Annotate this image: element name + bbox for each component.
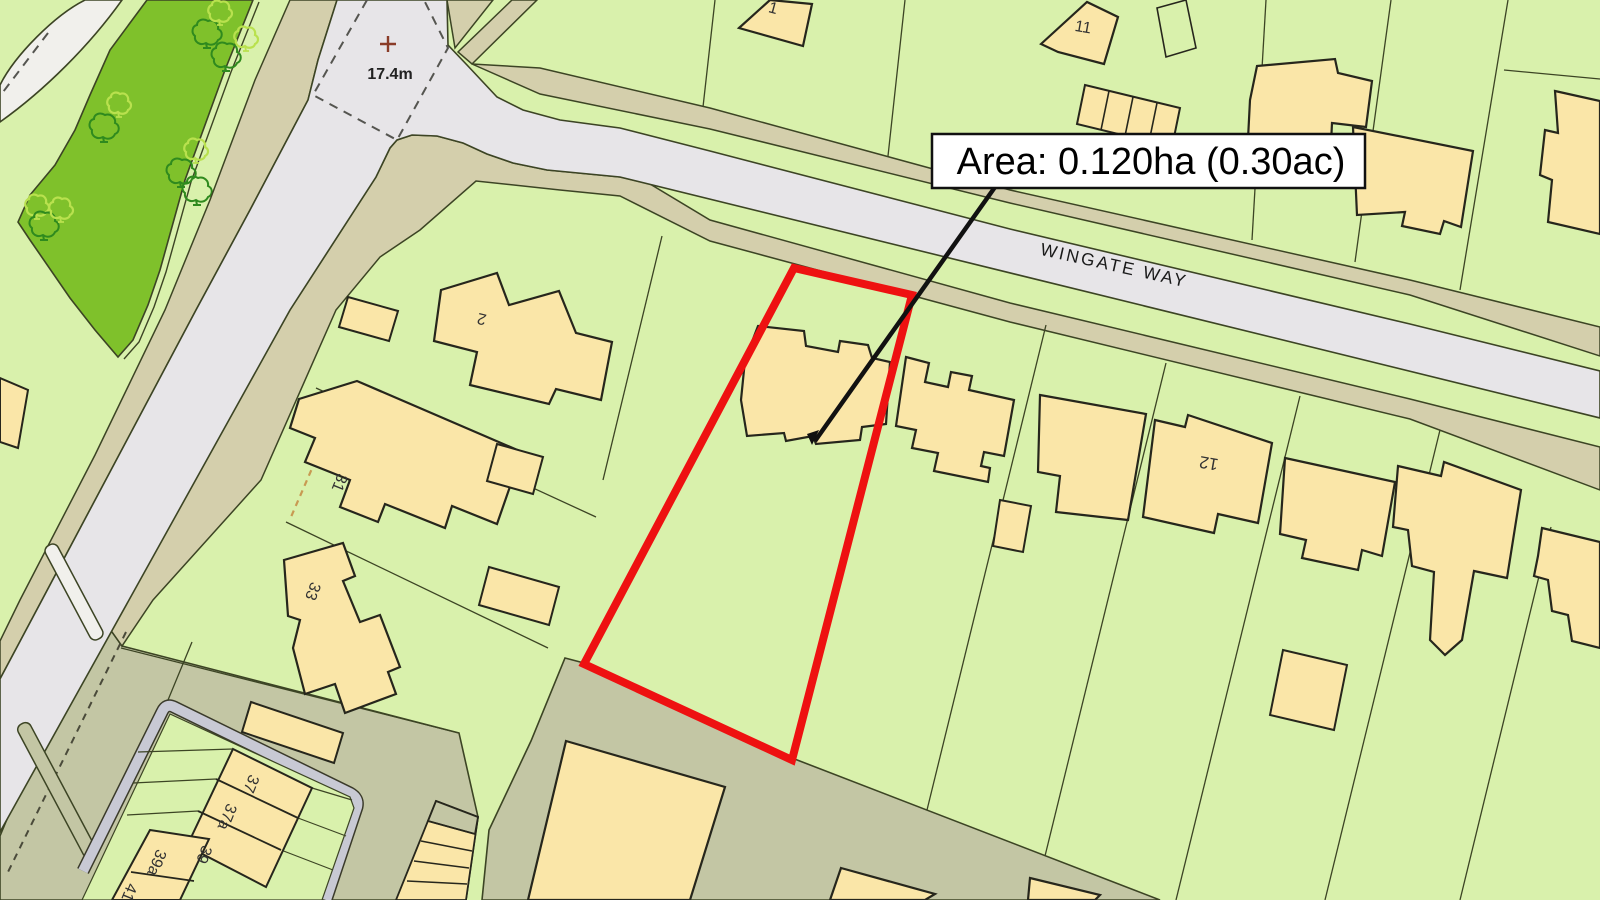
svg-text:12: 12 (1198, 452, 1220, 474)
svg-text:Area: 0.120ha (0.30ac): Area: 0.120ha (0.30ac) (957, 141, 1346, 183)
svg-text:17.4m: 17.4m (367, 66, 412, 83)
svg-text:11: 11 (1073, 18, 1092, 38)
